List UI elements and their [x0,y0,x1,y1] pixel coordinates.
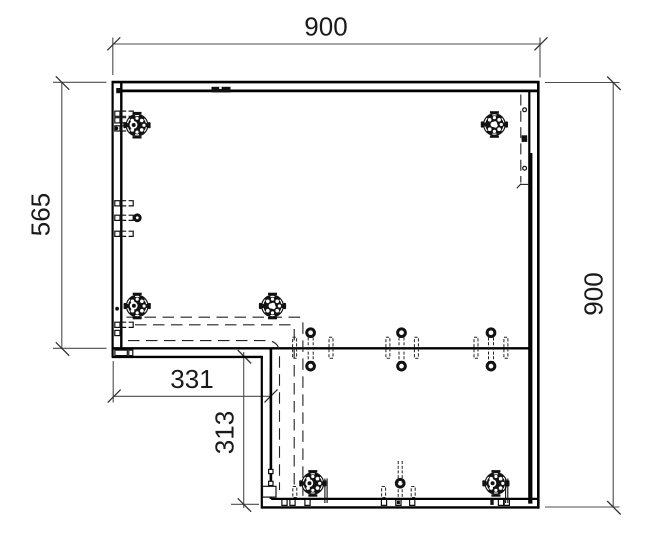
svg-text:565: 565 [26,193,56,236]
svg-text:900: 900 [579,272,609,315]
svg-text:900: 900 [304,12,347,42]
svg-text:313: 313 [210,411,240,454]
svg-text:331: 331 [170,364,213,394]
